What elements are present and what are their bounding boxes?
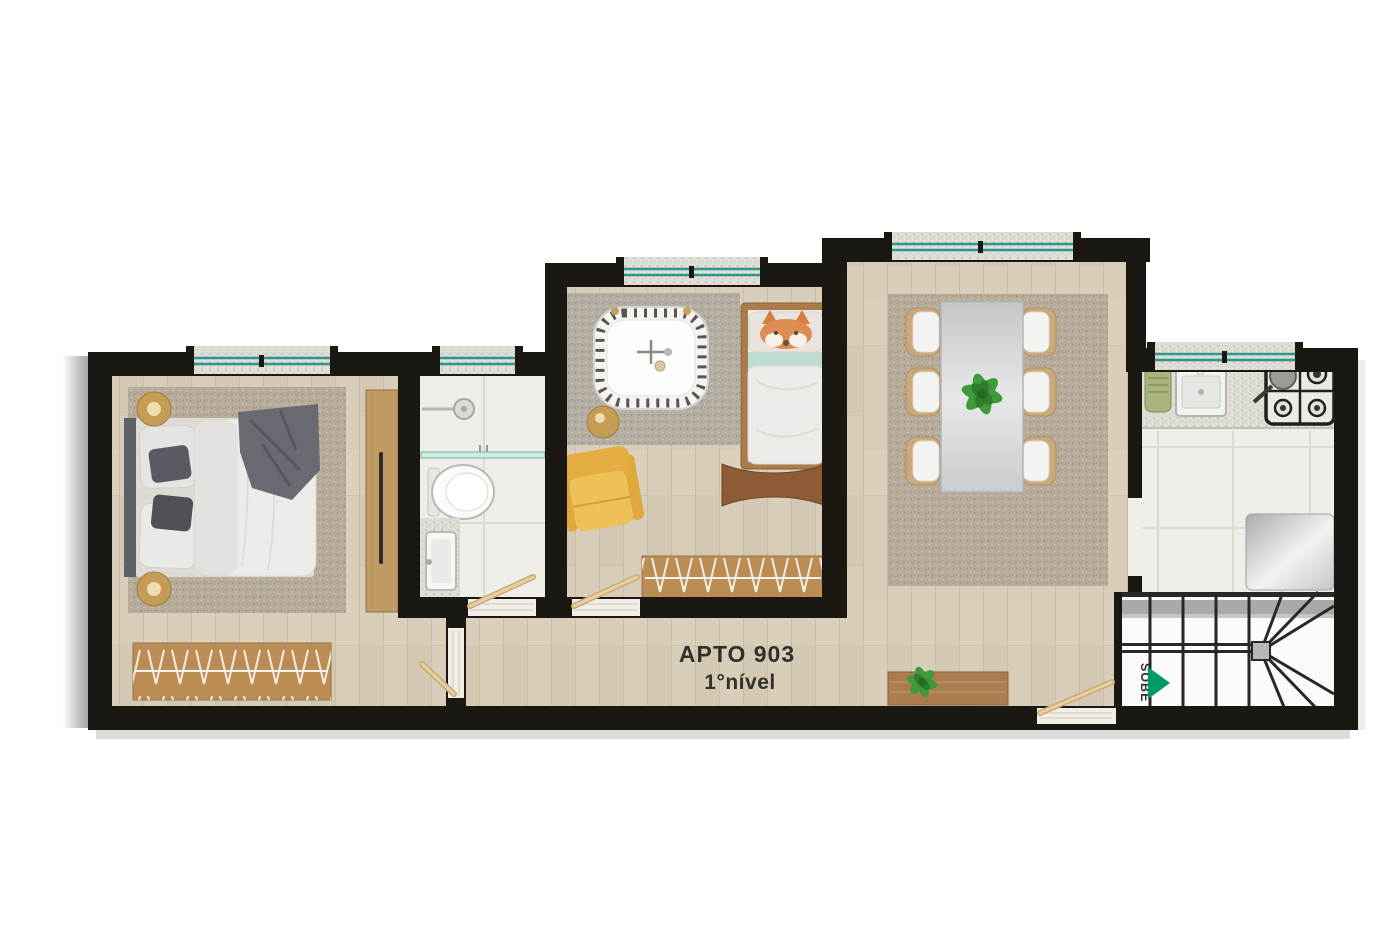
dining-chair xyxy=(1022,308,1056,356)
nightstand-bottom xyxy=(137,572,171,606)
window-bathroom xyxy=(432,346,523,374)
stair-rail xyxy=(1122,643,1262,646)
level-label: 1°nível xyxy=(704,671,775,694)
dining-chair xyxy=(906,437,940,485)
sideboard xyxy=(888,672,1008,705)
window-nursery xyxy=(616,257,768,285)
dining-chair xyxy=(1022,437,1056,485)
faucet-icon xyxy=(426,559,432,565)
window-dining xyxy=(884,232,1081,260)
staircase: SOBE xyxy=(1122,592,1334,712)
crib xyxy=(594,307,708,409)
wardrobe xyxy=(366,390,398,612)
double-bed xyxy=(124,404,320,577)
stair-newel xyxy=(1252,642,1270,660)
single-duvet xyxy=(748,366,824,464)
nightstand-top xyxy=(137,392,171,426)
window-kitchen xyxy=(1147,342,1303,370)
floor-plan: SOBE xyxy=(0,0,1400,950)
foot-bench xyxy=(133,643,331,700)
unit-label: APTO 903 xyxy=(679,641,795,667)
kitchen-lower-counter xyxy=(1246,514,1334,590)
accent-cushion xyxy=(150,494,193,532)
dining-chair xyxy=(906,368,940,416)
dining-chair xyxy=(1022,368,1056,416)
headboard xyxy=(124,418,136,577)
single-bed xyxy=(741,303,831,469)
toilet xyxy=(428,465,494,519)
accent-cushion xyxy=(148,444,192,483)
window-bedroom xyxy=(186,346,338,374)
room-dining xyxy=(888,294,1108,586)
pouf xyxy=(587,406,619,438)
wardrobe-handle xyxy=(379,452,383,564)
shower-glass-partition xyxy=(421,452,545,458)
bathroom-sink xyxy=(420,518,460,598)
floor-plan-page: SOBE xyxy=(0,0,1400,950)
slatted-bench xyxy=(642,556,824,600)
dining-chair xyxy=(906,308,940,356)
